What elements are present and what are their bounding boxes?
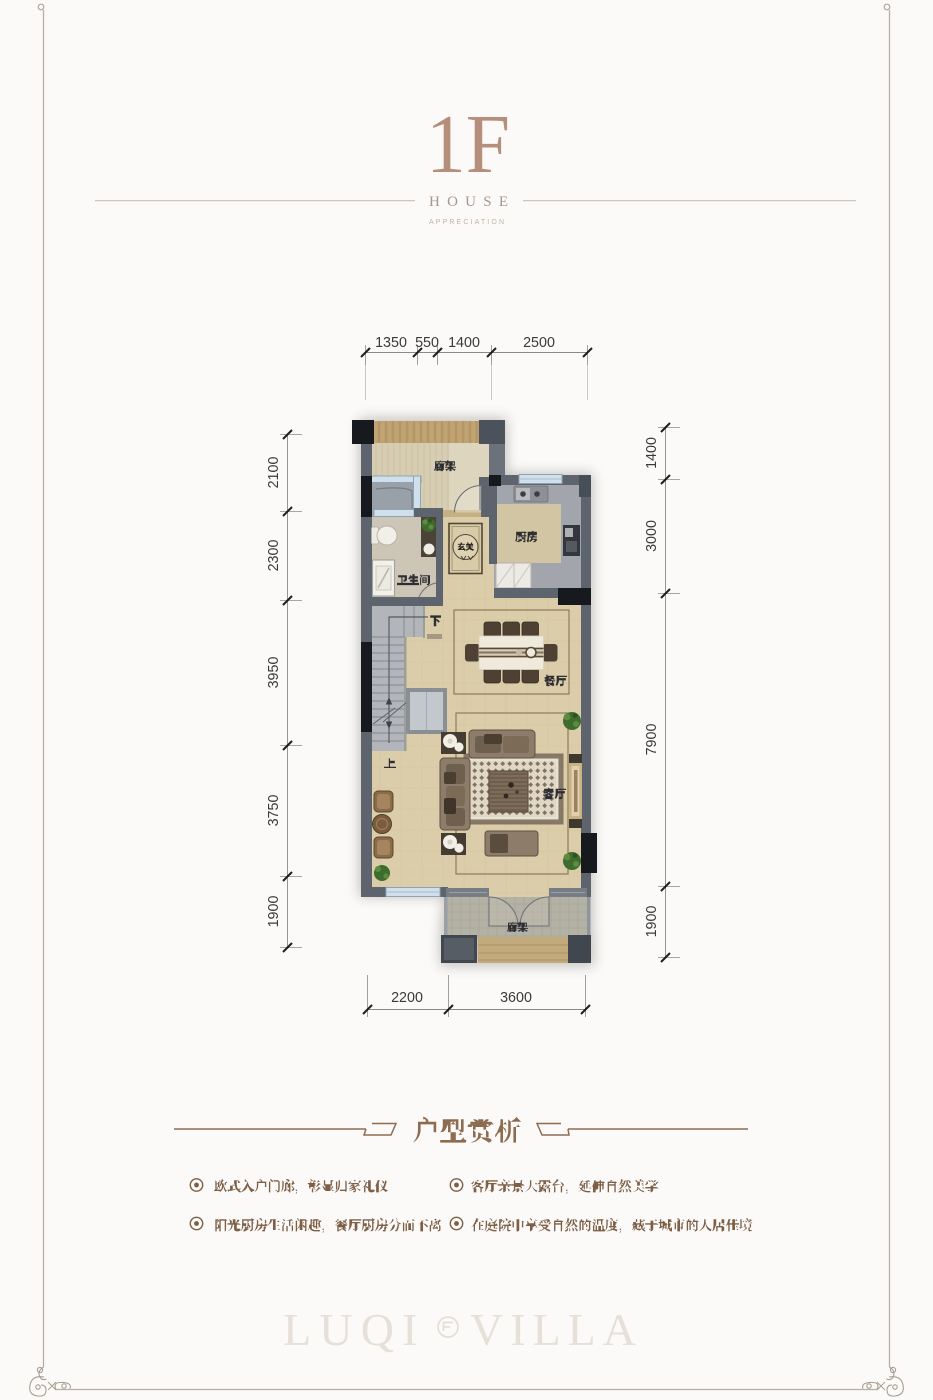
svg-text:3950: 3950	[266, 657, 282, 689]
svg-text:HOUSE: HOUSE	[429, 194, 517, 210]
svg-text:7900: 7900	[644, 724, 660, 756]
svg-text:1400: 1400	[448, 335, 480, 351]
svg-text:1900: 1900	[266, 896, 282, 928]
svg-text:2100: 2100	[266, 457, 282, 489]
svg-text:2200: 2200	[391, 990, 423, 1006]
svg-text:3000: 3000	[644, 520, 660, 552]
svg-text:1350: 1350	[375, 335, 407, 351]
svg-text:2300: 2300	[266, 540, 282, 572]
svg-text:2500: 2500	[523, 335, 555, 351]
svg-text:VILLA: VILLA	[470, 1304, 647, 1355]
svg-text:1F: 1F	[426, 98, 510, 191]
svg-text:1400: 1400	[644, 437, 660, 469]
svg-text:1900: 1900	[644, 906, 660, 938]
svg-text:3750: 3750	[266, 795, 282, 827]
svg-text:APPRECIATION: APPRECIATION	[429, 219, 507, 226]
svg-text:550: 550	[415, 335, 439, 351]
svg-text:3600: 3600	[500, 990, 532, 1006]
svg-text:LUQI: LUQI	[283, 1304, 433, 1355]
